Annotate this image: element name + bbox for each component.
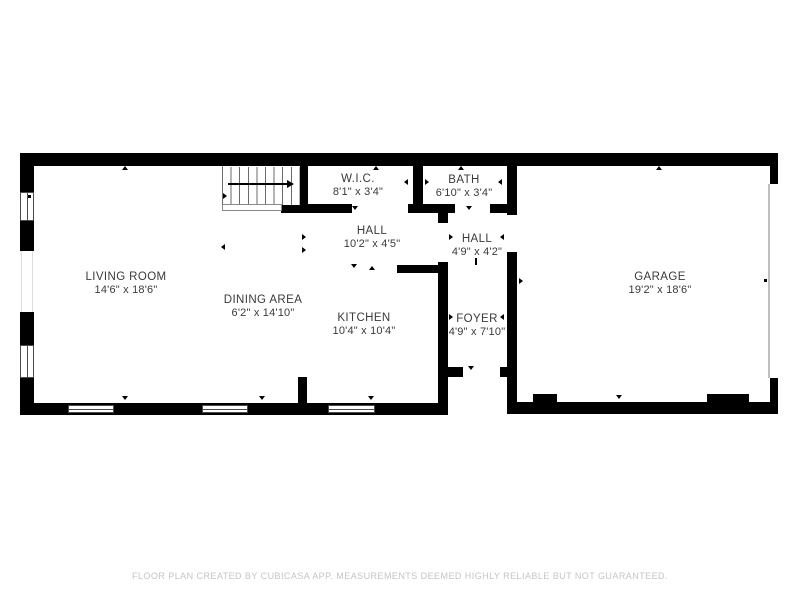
tick-mark (302, 247, 306, 253)
wall-garage-left (507, 252, 517, 414)
wall-hall-corner-stub (438, 204, 448, 223)
tick-mark (616, 395, 622, 399)
tick-mark (500, 234, 504, 240)
room-dimensions: 14'6" x 18'6" (56, 284, 196, 297)
stairs-direction-arrow (228, 183, 288, 185)
room-label-garage: GARAGE 19'2" x 18'6" (590, 271, 730, 297)
tick-mark (449, 234, 453, 240)
window (20, 192, 34, 221)
tick-mark (28, 195, 31, 198)
garage-door-pier (707, 394, 749, 403)
tick-mark (369, 266, 375, 270)
room-name: HALL (407, 233, 547, 246)
wall-wic-south (281, 204, 352, 213)
tick-mark (221, 244, 225, 250)
wall-garage-left (507, 153, 517, 215)
room-dimensions: 4'9" x 4'2" (407, 246, 547, 259)
tick-mark (519, 278, 523, 284)
room-label-living-room: LIVING ROOM 14'6" x 18'6" (56, 271, 196, 297)
wall-hall-south (397, 265, 442, 273)
front-door-stub (438, 367, 463, 377)
room-dimensions: 4'9" x 7'10" (407, 326, 547, 339)
garage-door (768, 184, 770, 378)
room-label-kitchen: KITCHEN 10'4" x 10'4" (294, 312, 434, 338)
tick-mark (373, 166, 379, 170)
wall-exterior-left (20, 221, 34, 251)
tick-mark (449, 314, 453, 320)
window (20, 345, 34, 378)
tick-mark (352, 206, 358, 210)
tick-mark (425, 179, 429, 185)
tick-mark (302, 234, 306, 240)
tick-mark (764, 279, 767, 282)
window (328, 405, 375, 413)
wall-exterior-left (20, 153, 34, 193)
window (68, 405, 114, 413)
room-dimensions: 19'2" x 18'6" (590, 284, 730, 297)
tick-mark (466, 206, 472, 210)
wall-corridor-left (438, 262, 448, 378)
tick-mark (498, 179, 502, 185)
room-dimensions: 6'2" x 14'10" (193, 307, 333, 320)
room-name: KITCHEN (294, 312, 434, 325)
wall-garage-bottom (507, 402, 778, 414)
tick-mark (404, 179, 408, 185)
room-dimensions: 8'1" x 3'4" (288, 186, 428, 199)
disclaimer-text: FLOOR PLAN CREATED BY CUBICASA APP. MEAS… (0, 571, 800, 581)
room-name: GARAGE (590, 271, 730, 284)
staircase-landing (222, 204, 282, 211)
room-label-hall-lower: HALL 4'9" x 4'2" (407, 233, 547, 259)
wall-opening (21, 251, 33, 312)
tick-mark (368, 396, 374, 400)
tick-mark (122, 396, 128, 400)
room-name: FOYER (407, 313, 547, 326)
room-label-hall-upper: HALL 10'2" x 4'5" (302, 225, 442, 251)
floor-plan: LIVING ROOM 14'6" x 18'6" DINING AREA 6'… (0, 0, 800, 600)
wall-corridor-left (438, 378, 448, 415)
wall-exterior-right (770, 378, 778, 414)
tick-mark (223, 193, 227, 199)
tick-mark (122, 166, 128, 170)
room-label-wic: W.I.C. 8'1" x 3'4" (288, 173, 428, 199)
stairs-arrow-head-icon (287, 180, 294, 188)
room-name: LIVING ROOM (56, 271, 196, 284)
wall-wic-bath-divider (413, 166, 423, 204)
garage-door-pier (533, 394, 557, 403)
wall-exterior-left (20, 312, 34, 345)
tick-mark (259, 396, 265, 400)
tick-mark (468, 366, 474, 370)
tick-mark (351, 264, 357, 268)
tick-mark (656, 166, 662, 170)
wall-kitchen-divider (298, 377, 307, 408)
window (202, 405, 248, 413)
room-name: DINING AREA (193, 294, 333, 307)
room-dimensions: 10'2" x 4'5" (302, 238, 442, 251)
tick-mark (458, 166, 464, 170)
room-dimensions: 10'4" x 10'4" (294, 325, 434, 338)
tick-mark (475, 258, 477, 265)
room-label-dining-area: DINING AREA 6'2" x 14'10" (193, 294, 333, 320)
room-name: HALL (302, 225, 442, 238)
wall-exterior-top (20, 153, 778, 166)
tick-mark (500, 314, 504, 320)
wall-exterior-right (770, 153, 778, 184)
room-label-foyer: FOYER 4'9" x 7'10" (407, 313, 547, 339)
